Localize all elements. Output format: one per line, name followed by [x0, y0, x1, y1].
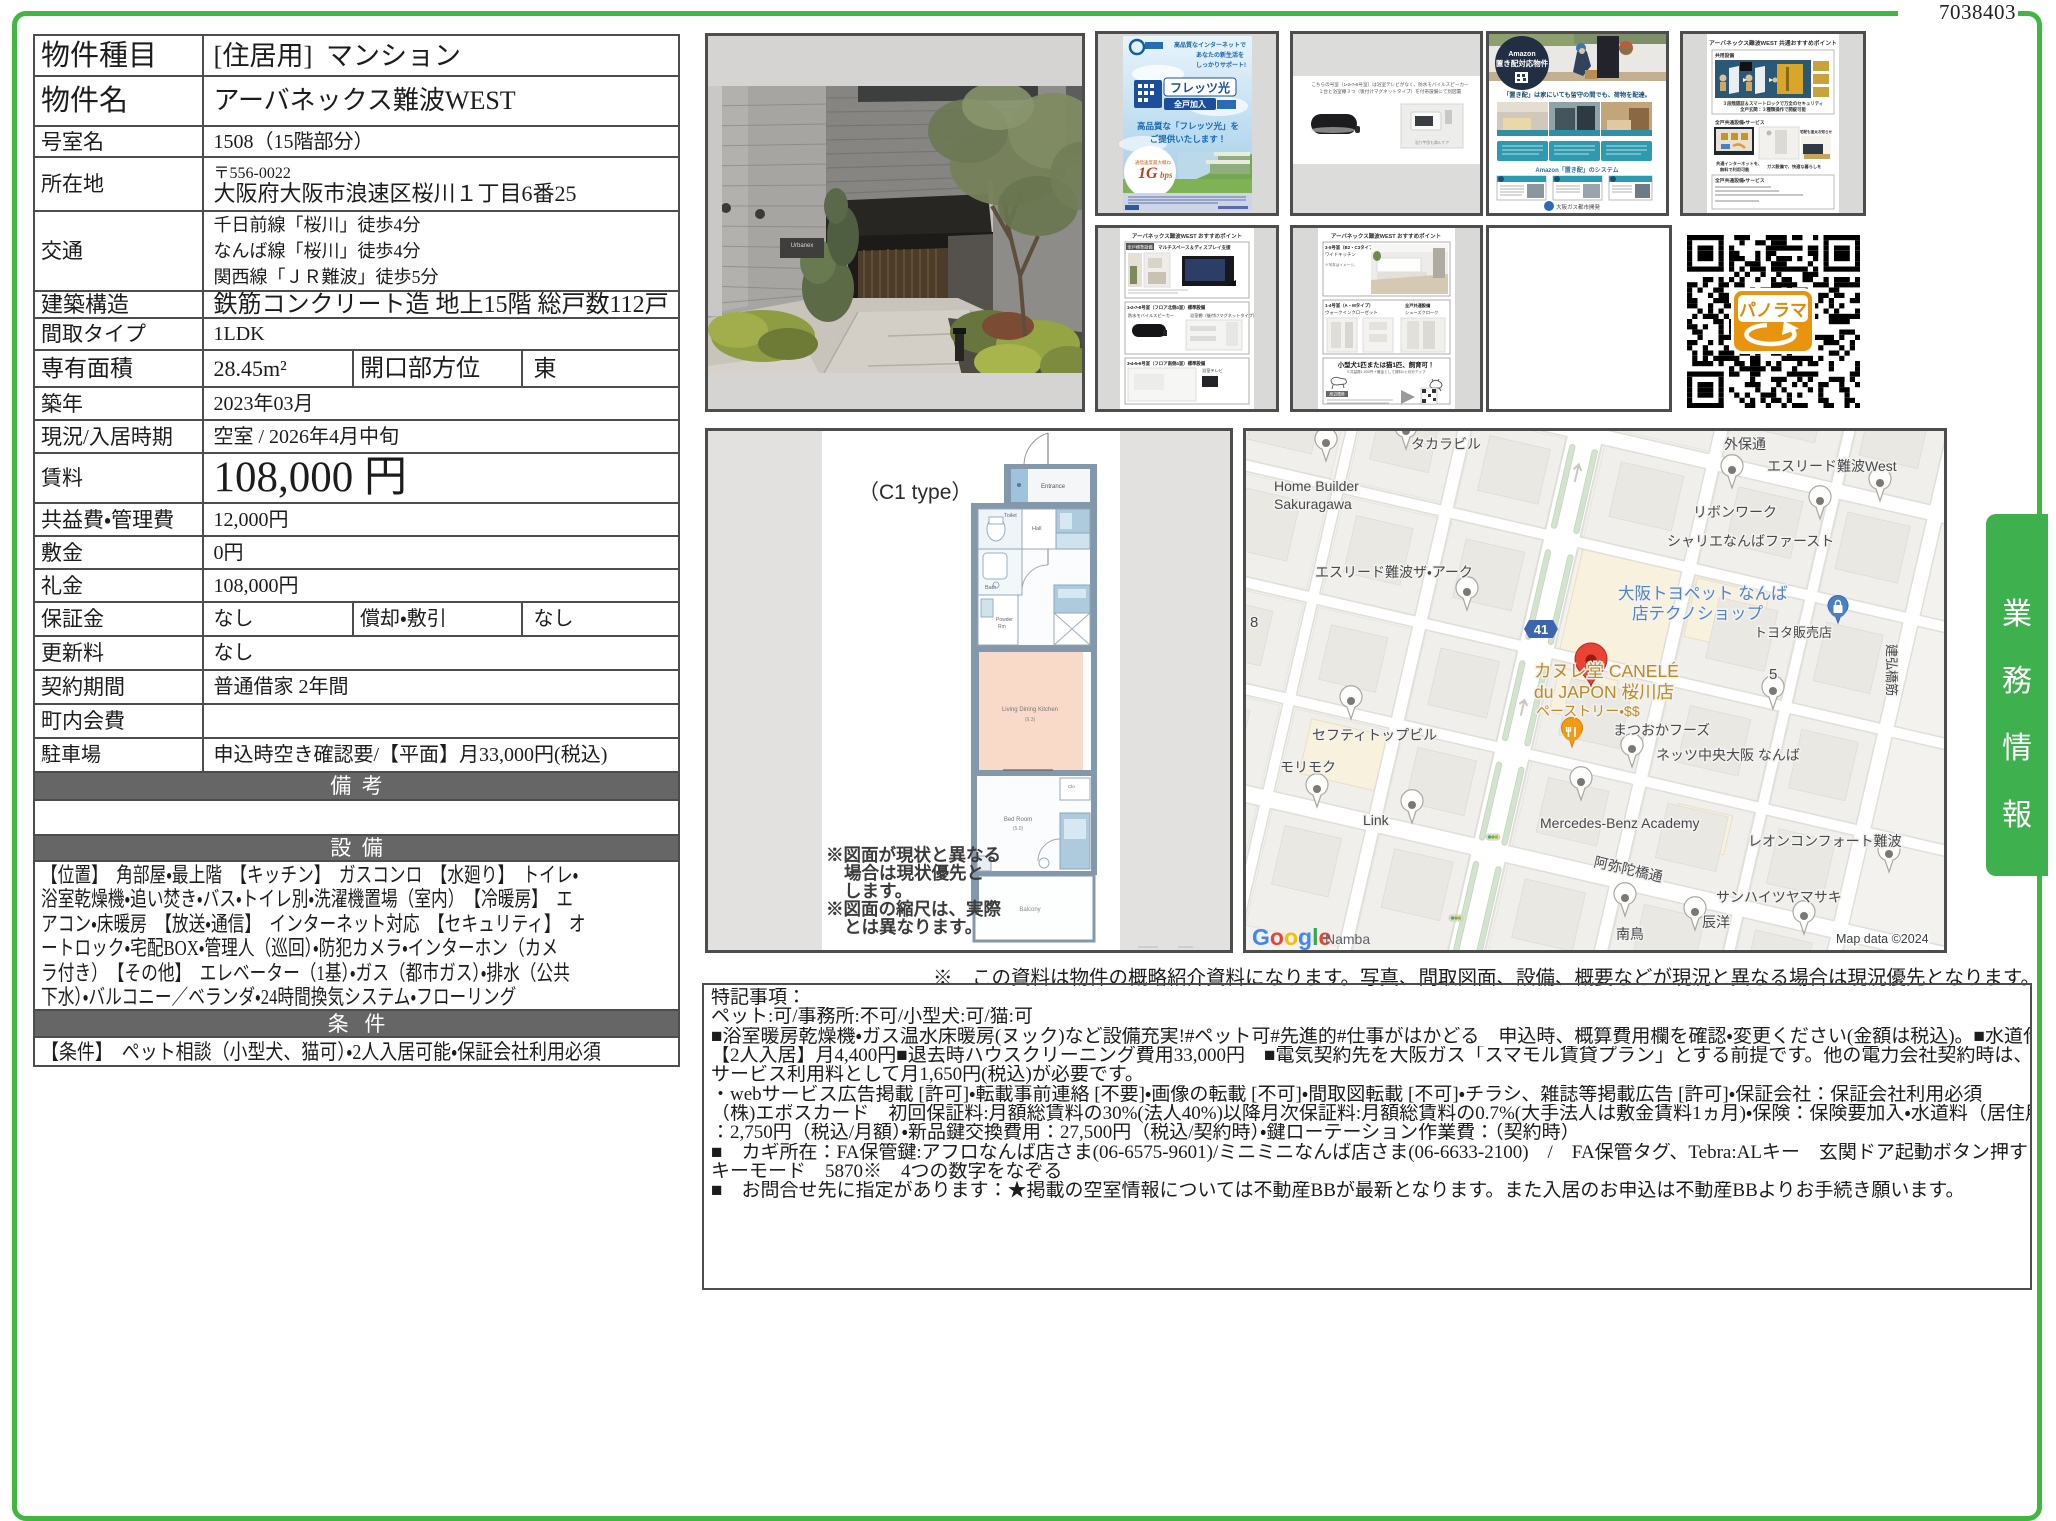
svg-text:建弘橋筋: 建弘橋筋: [1884, 644, 1899, 696]
svg-text:高品質な「フレッツ光」を: 高品質な「フレッツ光」を: [1137, 121, 1239, 131]
svg-text:Urbanex: Urbanex: [791, 243, 814, 249]
svg-text:トヨタ販売店: トヨタ販売店: [1754, 625, 1832, 640]
svg-text:１台と浴室棚３つ（後付けマグネットタイプ）を付帯設備にて別図: １台と浴室棚３つ（後付けマグネットタイプ）を付帯設備にて別図置: [1319, 88, 1462, 95]
svg-text:無料で利用可能: 無料で利用可能: [1720, 166, 1750, 173]
svg-text:ペーストリー・$$: ペーストリー・$$: [1536, 703, 1640, 719]
svg-text:(9.3): (9.3): [1025, 717, 1036, 723]
svg-text:タカラビル: タカラビル: [1411, 436, 1481, 452]
svg-text:全戸共通設備・サービス: 全戸共通設備・サービス: [1715, 119, 1765, 126]
svg-text:Link: Link: [1363, 812, 1390, 828]
svg-text:全戸共通設備・サービス: 全戸共通設備・サービス: [1715, 177, 1765, 184]
svg-text:カヌレ堂 CANELÉ: カヌレ堂 CANELÉ: [1534, 661, 1679, 681]
svg-text:※写真はイメージ。: ※写真はイメージ。: [1325, 262, 1357, 267]
svg-text:モリモク: モリモク: [1280, 759, 1336, 775]
svg-text:Living Dining Kitchen: Living Dining Kitchen: [1002, 707, 1058, 713]
svg-text:Balcony: Balcony: [1019, 907, 1040, 913]
svg-text:リボンワーク: リボンワーク: [1693, 504, 1777, 520]
svg-text:※図面の縮尺は、実際: ※図面の縮尺は、実際: [826, 899, 1001, 919]
svg-text:3-5号室（B2・C3タイプ）: 3-5号室（B2・C3タイプ）: [1325, 244, 1378, 251]
svg-text:Google: Google: [1252, 924, 1331, 950]
svg-text:外保通: 外保通: [1724, 436, 1766, 452]
svg-text:こちらの号室（1・2・7・8号室）は浴室テレビがなく、防水モ: こちらの号室（1・2・7・8号室）は浴室テレビがなく、防水モバイルスピーカー: [1311, 81, 1469, 88]
svg-text:シャリエなんばファースト: シャリエなんばファースト: [1667, 533, 1834, 549]
svg-text:周辺環境: 周辺環境: [1329, 392, 1344, 397]
svg-text:防水モバイルスピーカー: 防水モバイルスピーカー: [1128, 312, 1174, 319]
svg-text:Amazon「置き配」のシステム: Amazon「置き配」のシステム: [1535, 166, 1618, 174]
svg-text:店テクノショップ: 店テクノショップ: [1632, 604, 1764, 623]
svg-text:8: 8: [1250, 614, 1258, 631]
svg-text:1G: 1G: [1138, 165, 1158, 182]
svg-text:ガス設備で、快適な暮らしを: ガス設備で、快適な暮らしを: [1767, 163, 1821, 170]
svg-text:Home Builder: Home Builder: [1274, 478, 1359, 494]
svg-text:通信速度最大概ね: 通信速度最大概ね: [1135, 159, 1171, 166]
svg-text:シューズクローク: シューズクローク: [1405, 309, 1438, 316]
svg-text:辰洋: 辰洋: [1702, 914, 1730, 930]
svg-text:全戸共通設備: 全戸共通設備: [1404, 302, 1431, 309]
svg-text:（C1 type）: （C1 type）: [858, 481, 972, 504]
svg-text:Amazon: Amazon: [1508, 51, 1535, 58]
svg-text:Toilet: Toilet: [1004, 513, 1017, 519]
svg-text:大阪ガス都市開発: 大阪ガス都市開発: [1556, 203, 1601, 211]
svg-text:大阪トヨペット なんば: 大阪トヨペット なんば: [1618, 584, 1788, 603]
svg-text:bps: bps: [1160, 170, 1173, 180]
svg-text:41: 41: [1534, 622, 1548, 637]
svg-text:※図面が現状と異なる: ※図面が現状と異なる: [826, 845, 1001, 865]
svg-text:浴室テレビ: 浴室テレビ: [1202, 367, 1223, 374]
svg-text:Mercedes-Benz Academy: Mercedes-Benz Academy: [1540, 815, 1700, 831]
svg-text:宅配も速太お知らせ: 宅配も速太お知らせ: [1800, 129, 1833, 134]
svg-text:エスリード難波ザ・アーク: エスリード難波ザ・アーク: [1315, 564, 1473, 580]
svg-text:サンハイツヤマサキ: サンハイツヤマサキ: [1716, 889, 1842, 905]
svg-text:共用設備: 共用設備: [1715, 52, 1734, 59]
svg-text:エスリード難波West: エスリード難波West: [1767, 458, 1897, 474]
svg-text:(5.0): (5.0): [1013, 826, 1024, 832]
svg-text:３段階認証＆スマートロックで万全のセキュリティ: ３段階認証＆スマートロックで万全のセキュリティ: [1723, 100, 1824, 107]
svg-text:1・2・7・8号室（フロア北側4室）標準設備: 1・2・7・8号室（フロア北側4室）標準設備: [1127, 304, 1206, 311]
svg-text:共通インターネットを、: 共通インターネットを、: [1716, 160, 1762, 167]
svg-text:高品質なインターネットで: 高品質なインターネットで: [1174, 41, 1246, 49]
svg-text:小型犬1匹または猫1匹、飼育可！: 小型犬1匹または猫1匹、飼育可！: [1338, 360, 1435, 369]
svg-text:全戸加入: 全戸加入: [1173, 99, 1206, 109]
svg-text:フレッツ光: フレッツ光: [1170, 80, 1230, 95]
svg-text:ウォークインクローゼット: ウォークインクローゼット: [1325, 309, 1378, 316]
svg-text:Rm: Rm: [998, 624, 1006, 630]
svg-text:5: 5: [1769, 666, 1777, 683]
svg-text:浴室棚（後付けマグネットタイプ）: 浴室棚（後付けマグネットタイプ）: [1190, 312, 1257, 319]
svg-text:セフティトップビル: セフティトップビル: [1312, 727, 1437, 743]
svg-text:ワイドキッチン: ワイドキッチン: [1325, 252, 1356, 257]
svg-text:レオンコンフォート難波: レオンコンフォート難波: [1748, 833, 1902, 849]
svg-text:3・4・5・6号室（フロア南側4室）標準設備: 3・4・5・6号室（フロア南側4室）標準設備: [1127, 360, 1206, 367]
svg-text:しっかりサポート!: しっかりサポート!: [1196, 61, 1246, 69]
svg-text:します。: します。: [844, 881, 912, 901]
svg-text:Map data ©2024: Map data ©2024: [1836, 932, 1929, 946]
svg-text:1-4号室（A・Mタイプ）: 1-4号室（A・Mタイプ）: [1325, 302, 1373, 309]
svg-text:とは異なります。: とは異なります。: [844, 917, 982, 937]
svg-text:「置き配」は家にいても留守の間でも、荷物を配達。: 「置き配」は家にいても留守の間でも、荷物を配達。: [1503, 91, 1651, 99]
svg-text:Powder: Powder: [996, 617, 1013, 623]
svg-text:Hall: Hall: [1032, 526, 1041, 532]
svg-text:Entrance: Entrance: [1041, 484, 1066, 490]
svg-text:Bed Room: Bed Room: [1004, 817, 1032, 823]
svg-text:マルチスペース＆ディスプレイ支援: マルチスペース＆ディスプレイ支援: [1158, 244, 1231, 251]
svg-text:浴り芋思も満ルケア: 浴り芋思も満ルケア: [1415, 140, 1449, 145]
svg-text:アーバネックス難波WEST 共通おすすめポイント: アーバネックス難波WEST 共通おすすめポイント: [1709, 39, 1837, 47]
svg-text:場合は現状優先と: 場合は現状優先と: [844, 863, 984, 883]
svg-text:全戸玄関：３種類操作で開錠可能: 全戸玄関：３種類操作で開錠可能: [1740, 106, 1806, 113]
svg-text:ネッツ中央大阪 なんば: ネッツ中央大阪 なんば: [1656, 747, 1800, 763]
svg-text:あなたの新生活を: あなたの新生活を: [1196, 51, 1244, 59]
svg-text:※共益費1,000円＋敷金として賃料1ヶ月分アップ: ※共益費1,000円＋敷金として賃料1ヶ月分アップ: [1346, 369, 1426, 374]
svg-text:ご提供いたします！: ご提供いたします！: [1150, 134, 1227, 144]
svg-text:Namba: Namba: [1325, 931, 1370, 947]
svg-text:Sakuragawa: Sakuragawa: [1274, 496, 1352, 512]
svg-text:全戸標準設備: 全戸標準設備: [1127, 244, 1153, 251]
svg-text:パノラマ: パノラマ: [1739, 301, 1807, 320]
svg-text:置き配対応物件: 置き配対応物件: [1496, 58, 1549, 68]
svg-text:まつおかフーズ: まつおかフーズ: [1613, 722, 1710, 738]
svg-text:南鳥: 南鳥: [1616, 926, 1644, 942]
svg-text:アーバネックス難波WEST おすすめポイント: アーバネックス難波WEST おすすめポイント: [1132, 232, 1242, 240]
svg-text:du JAPON 桜川店: du JAPON 桜川店: [1534, 682, 1674, 702]
svg-text:Clo: Clo: [1068, 784, 1075, 789]
svg-text:アーバネックス難波WEST おすすめポイント: アーバネックス難波WEST おすすめポイント: [1331, 232, 1441, 240]
